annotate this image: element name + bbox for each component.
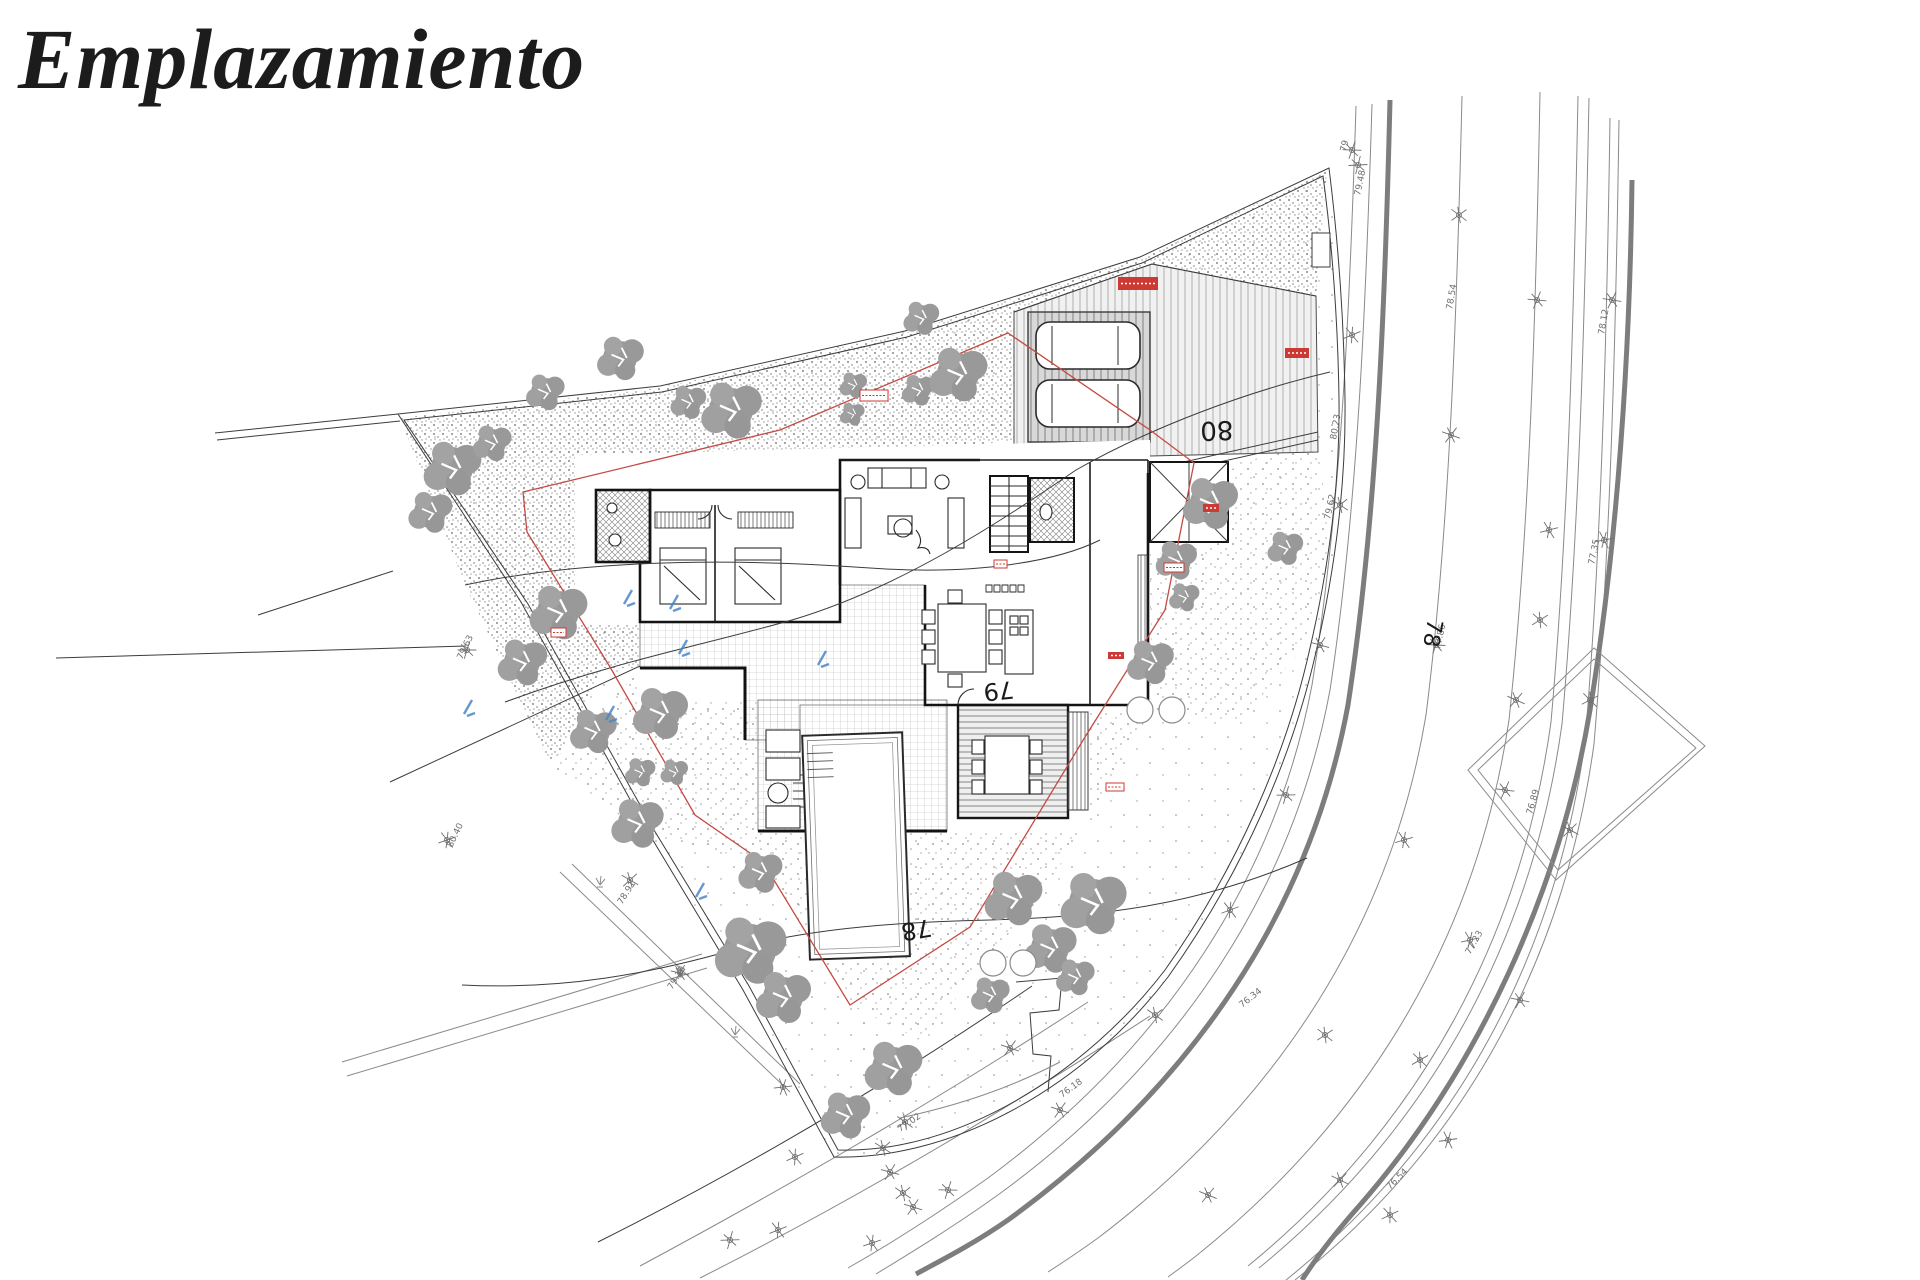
tree	[597, 337, 644, 380]
survey-elevation-label: 77.23	[1464, 929, 1486, 956]
survey-cross-icon	[1538, 519, 1559, 540]
survey-cross-icon	[1199, 1186, 1218, 1205]
survey-cross-icon	[1050, 1100, 1069, 1119]
survey-cross-icon	[719, 1229, 741, 1251]
survey-cross-icon	[1380, 1205, 1400, 1225]
survey-cross-icon	[1220, 900, 1241, 921]
survey-elevation-label: 76.34	[1238, 986, 1265, 1010]
sink-icon	[607, 503, 617, 513]
survey-cross-icon	[1316, 1026, 1334, 1044]
survey-cross-icon	[1507, 691, 1525, 709]
survey-cross-icon	[1442, 426, 1461, 445]
survey-cross-icon	[895, 1185, 912, 1202]
survey-cross-icon	[1602, 290, 1623, 311]
survey-cross-icon	[1531, 611, 1549, 629]
survey-elevation-label: 78.91	[616, 879, 638, 906]
survey-cross-icon	[1342, 325, 1362, 345]
neighbor-parcel-diamond	[1468, 648, 1705, 880]
street-edge-lines	[215, 414, 400, 440]
survey-elevation-label: 78.54	[1445, 283, 1459, 310]
planter	[1127, 697, 1153, 723]
gate-notch	[1312, 233, 1330, 267]
pool	[802, 732, 910, 959]
survey-cross-icon	[937, 1179, 959, 1201]
kitchen-island	[1005, 610, 1033, 674]
survey-cross-icon	[1147, 1007, 1164, 1024]
wardrobe-1	[655, 512, 710, 528]
bathroom-1	[596, 490, 650, 562]
planter	[1159, 697, 1185, 723]
survey-elevation-label: 78.12	[1597, 308, 1611, 335]
survey-elevation-label: 79.63	[456, 634, 476, 662]
toilet-icon	[609, 534, 621, 546]
contour-elevation-label: 78	[899, 913, 934, 946]
pavilion	[958, 705, 1088, 818]
bed-1	[660, 548, 706, 604]
survey-cross-icon	[1275, 784, 1297, 806]
survey-cross-icon	[903, 1197, 923, 1217]
survey-cross-icon	[1411, 1051, 1430, 1070]
site-plan-drawing: 7979.4880.2379.6278.5477.8678.1277.3576.…	[0, 0, 1920, 1280]
survey-cross-icon	[1393, 829, 1414, 850]
survey-elevation-label: 79.15	[666, 964, 688, 991]
page-title: Emplazamiento	[17, 11, 585, 107]
survey-elevation-label: 80.40	[446, 822, 466, 850]
contour-elevation-label: 79	[982, 675, 1015, 706]
kitchen-counter-units	[986, 585, 1024, 592]
blue-survey-mark	[464, 700, 475, 716]
bed-2	[735, 548, 781, 604]
planter	[1010, 950, 1036, 976]
lamp-icon	[935, 475, 949, 489]
survey-elevation-label: 76.89	[1525, 788, 1542, 816]
planter	[980, 950, 1006, 976]
survey-cross-icon	[785, 1147, 805, 1167]
lamp-icon	[851, 475, 865, 489]
survey-elevation-label: 77.35	[1587, 538, 1602, 565]
survey-cross-icon	[1437, 1129, 1459, 1151]
survey-elevation-label: 76.18	[1058, 1077, 1085, 1100]
contour-elevation-label: 78	[1417, 617, 1446, 649]
contour-elevation-label: 80	[1200, 414, 1234, 445]
site-plan-page: { "title": "Emplazamiento", "colors": { …	[0, 0, 1920, 1280]
survey-cross-icon	[1526, 289, 1548, 311]
survey-cross-icon	[862, 1233, 883, 1254]
toilet-icon	[1040, 504, 1052, 520]
wardrobe-2	[738, 512, 793, 528]
car-1	[1036, 322, 1140, 369]
survey-cross-icon	[772, 1076, 794, 1098]
sun-loungers	[766, 730, 800, 828]
